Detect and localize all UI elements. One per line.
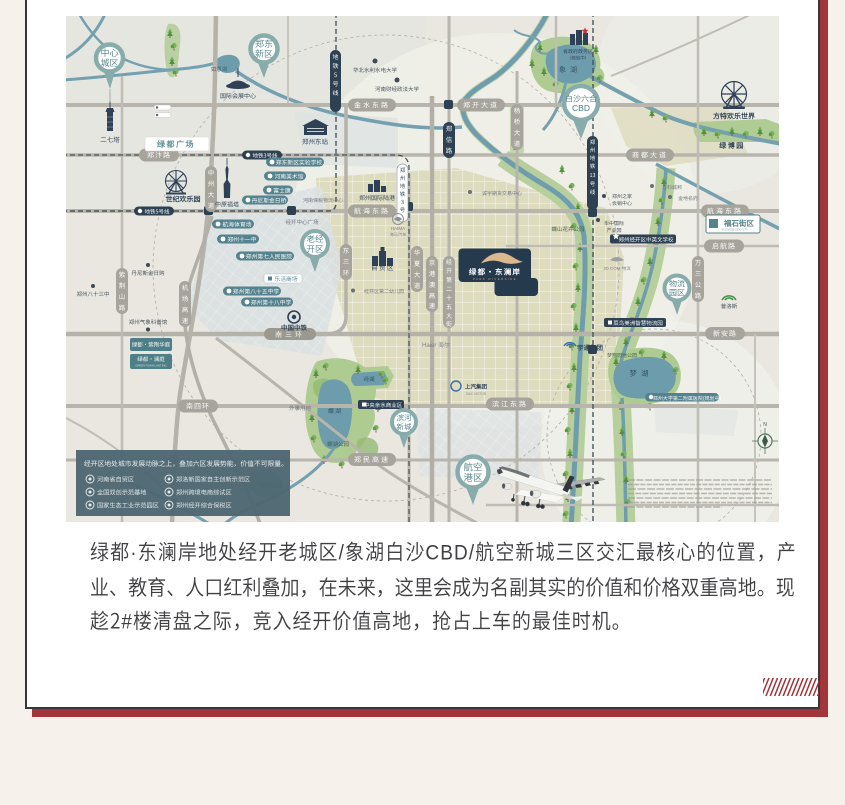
svg-text:郑州经开区中英文学校: 郑州经开区中英文学校 [618,235,674,243]
svg-text:经开区地处城市发展动脉之上，叠加六区发展势能，价值不可限量。: 经开区地处城市发展动脉之上，叠加六区发展势能，价值不可限量。 [84,458,288,468]
svg-text:FUSHI BLOCK CITY: FUSHI BLOCK CITY [722,228,748,232]
svg-text:梦湖: 梦湖 [630,368,653,379]
svg-text:河南保税物流中心: 河南保税物流中心 [303,197,343,204]
svg-text:商都大道: 商都大道 [632,151,668,161]
svg-text:梦翔园地公园: 梦翔园地公园 [607,352,637,359]
svg-text:地铁5号线: 地铁5号线 [144,207,170,215]
svg-text:蝶湖公园: 蝶湖公园 [327,440,350,448]
svg-text:郑州东站: 郑州东站 [302,136,329,146]
svg-text:郑州第十八中学: 郑州第十八中学 [251,297,292,306]
svg-text:如意湖: 如意湖 [211,65,228,73]
svg-text:郑州第八十五中学: 郑州第八十五中学 [233,286,280,295]
svg-text:新城: 新城 [397,422,412,433]
svg-text:乐活商场: 乐活商场 [274,274,297,283]
svg-text:上汽集团: 上汽集团 [465,383,488,391]
svg-text:城区: 城区 [100,56,118,69]
svg-text:象湖: 象湖 [559,65,581,75]
svg-text:Haier 海尔: Haier 海尔 [422,340,450,349]
svg-text:蝶湖: 蝶湖 [328,406,342,415]
svg-text:启航路: 启航路 [712,242,736,252]
svg-text:外事用地: 外事用地 [289,404,312,412]
svg-text:郑州地铁13号线: 郑州地铁13号线 [589,138,595,196]
svg-text:河南美术馆: 河南美术馆 [275,171,304,180]
svg-text:京港澳高速: 京港澳高速 [429,257,436,310]
svg-text:世纪欢乐园: 世纪欢乐园 [166,195,201,205]
svg-text:绿都·东澜岸: 绿都·东澜岸 [469,267,521,278]
svg-text:河南财经政法大学: 河南财经政法大学 [375,85,420,93]
svg-text:（规划中）: （规划中） [567,56,590,62]
svg-text:航海东路: 航海东路 [354,207,390,217]
svg-text:经开区第二幼儿园: 经开区第二幼儿园 [364,288,404,295]
svg-text:园区: 园区 [669,288,685,299]
svg-text:绿都·澜庭: 绿都·澜庭 [137,355,165,363]
svg-text:郑州跨境电商综试区: 郑州跨境电商综试区 [176,488,232,497]
svg-text:航海体育场: 航海体育场 [223,219,252,228]
svg-text:自贸区: 自贸区 [371,262,395,272]
svg-text:荷湖: 荷湖 [363,375,375,383]
svg-text:郑州气象科普馆: 郑州气象科普馆 [129,318,168,326]
svg-text:河南省自贸区: 河南省自贸区 [97,475,134,484]
svg-text:金地名府: 金地名府 [678,195,698,202]
svg-text:绿都广场: 绿都广场 [157,139,195,150]
svg-text:菜鸟美洲智慧物流园: 菜鸟美洲智慧物流园 [613,319,663,327]
svg-text:万科城邦: 万科城邦 [662,184,682,191]
svg-text:方特欢乐世界: 方特欢乐世界 [713,112,756,122]
svg-text:港区: 港区 [463,470,483,484]
svg-text:SAIC MOTOR: SAIC MOTOR [466,391,487,396]
svg-text:中国中铁: 中国中铁 [281,322,308,332]
svg-text:PARK RIVERSIDE: PARK RIVERSIDE [473,277,517,281]
svg-text:CBD: CBD [572,102,590,114]
svg-text:郑州之家: 郑州之家 [612,193,632,200]
svg-text:海马汽车: 海马汽车 [390,232,407,238]
svg-text:丹尼斯金日购: 丹尼斯金日购 [131,269,165,277]
svg-text:省政府政务区: 省政府政务区 [563,48,593,55]
svg-text:新安路: 新安路 [713,329,737,339]
svg-text:滨江东路: 滨江东路 [492,400,528,410]
svg-text:郑洛新国家自主创新示范区: 郑洛新国家自主创新示范区 [176,475,250,484]
svg-text:郑民高速: 郑民高速 [354,455,390,465]
svg-text:郑州八十三中: 郑州八十三中 [76,290,109,298]
svg-text:绿博园: 绿博园 [719,141,745,151]
svg-text:郑东新区实验学校: 郑东新区实验学校 [276,157,323,166]
svg-text:郑州第七人民医院: 郑州第七人民医院 [246,251,293,260]
svg-text:郑州国际陆港: 郑州国际陆港 [359,193,395,202]
svg-text:紫荆山路: 紫荆山路 [119,269,126,312]
svg-text:郑州地铁3号: 郑州地铁3号 [400,166,406,214]
svg-text:开区: 开区 [306,243,324,255]
svg-text:南四环: 南四环 [186,402,210,412]
svg-text:富士康: 富士康 [273,185,291,194]
svg-text:郑州经开综合保税区: 郑州经开综合保税区 [176,501,232,510]
svg-text:诚宇期货交易中心: 诚宇期货交易中心 [482,190,522,197]
svg-text:JD.COM 物流: JD.COM 物流 [603,266,631,272]
svg-text:郑汴路: 郑汴路 [147,151,171,161]
svg-text:华北水利水电大学: 华北水利水电大学 [353,66,398,74]
svg-text:机场高速: 机场高速 [182,282,189,325]
svg-text:全国双创示范基地: 全国双创示范基地 [97,488,147,497]
svg-text:经开第二十五大街: 经开第二十五大街 [446,257,452,328]
svg-text:东三环: 东三环 [343,245,350,277]
svg-text:经开中心广场: 经开中心广场 [285,218,319,226]
svg-text:郑开大道: 郑开大道 [463,101,499,111]
svg-text:郑州大学第二附属医院(规划中): 郑州大学第二附属医院(规划中) [653,395,722,402]
svg-text:新区: 新区 [255,47,273,60]
svg-text:国家生态工业示范园区: 国家生态工业示范园区 [97,501,159,510]
svg-text:会销中心: 会销中心 [612,200,632,207]
svg-text:产业园: 产业园 [606,227,621,234]
svg-text:N: N [763,421,767,428]
svg-text:中原福塔: 中原福塔 [215,200,239,209]
svg-text:华夏大道: 华夏大道 [414,247,421,290]
svg-text:万三公路: 万三公路 [695,257,702,300]
svg-text:二七塔: 二七塔 [100,134,120,144]
svg-text:中州大道: 中州大道 [208,167,215,210]
svg-text:郑州十一中: 郑州十一中 [228,234,257,243]
svg-text:郑信路: 郑信路 [446,123,453,155]
svg-text:普洛斯: 普洛斯 [721,302,738,310]
svg-text:国际会展中心: 国际会展中心 [220,91,256,100]
svg-text:宇通集团: 宇通集团 [577,342,604,352]
svg-text:中央亲水商业区: 中央亲水商业区 [364,401,403,409]
svg-text:杨桥大道: 杨桥大道 [514,105,521,148]
svg-text:绿都·紫荆华庭: 绿都·紫荆华庭 [132,341,171,349]
svg-text:华中国际: 华中国际 [604,220,624,227]
svg-text:丹尼斯金日桥: 丹尼斯金日桥 [252,195,287,204]
svg-text:蝶山花卉公园: 蝶山花卉公园 [551,225,585,233]
svg-text:GREENTOWN LANTING: GREENTOWN LANTING [135,364,166,368]
svg-text:金水东路: 金水东路 [354,101,390,111]
